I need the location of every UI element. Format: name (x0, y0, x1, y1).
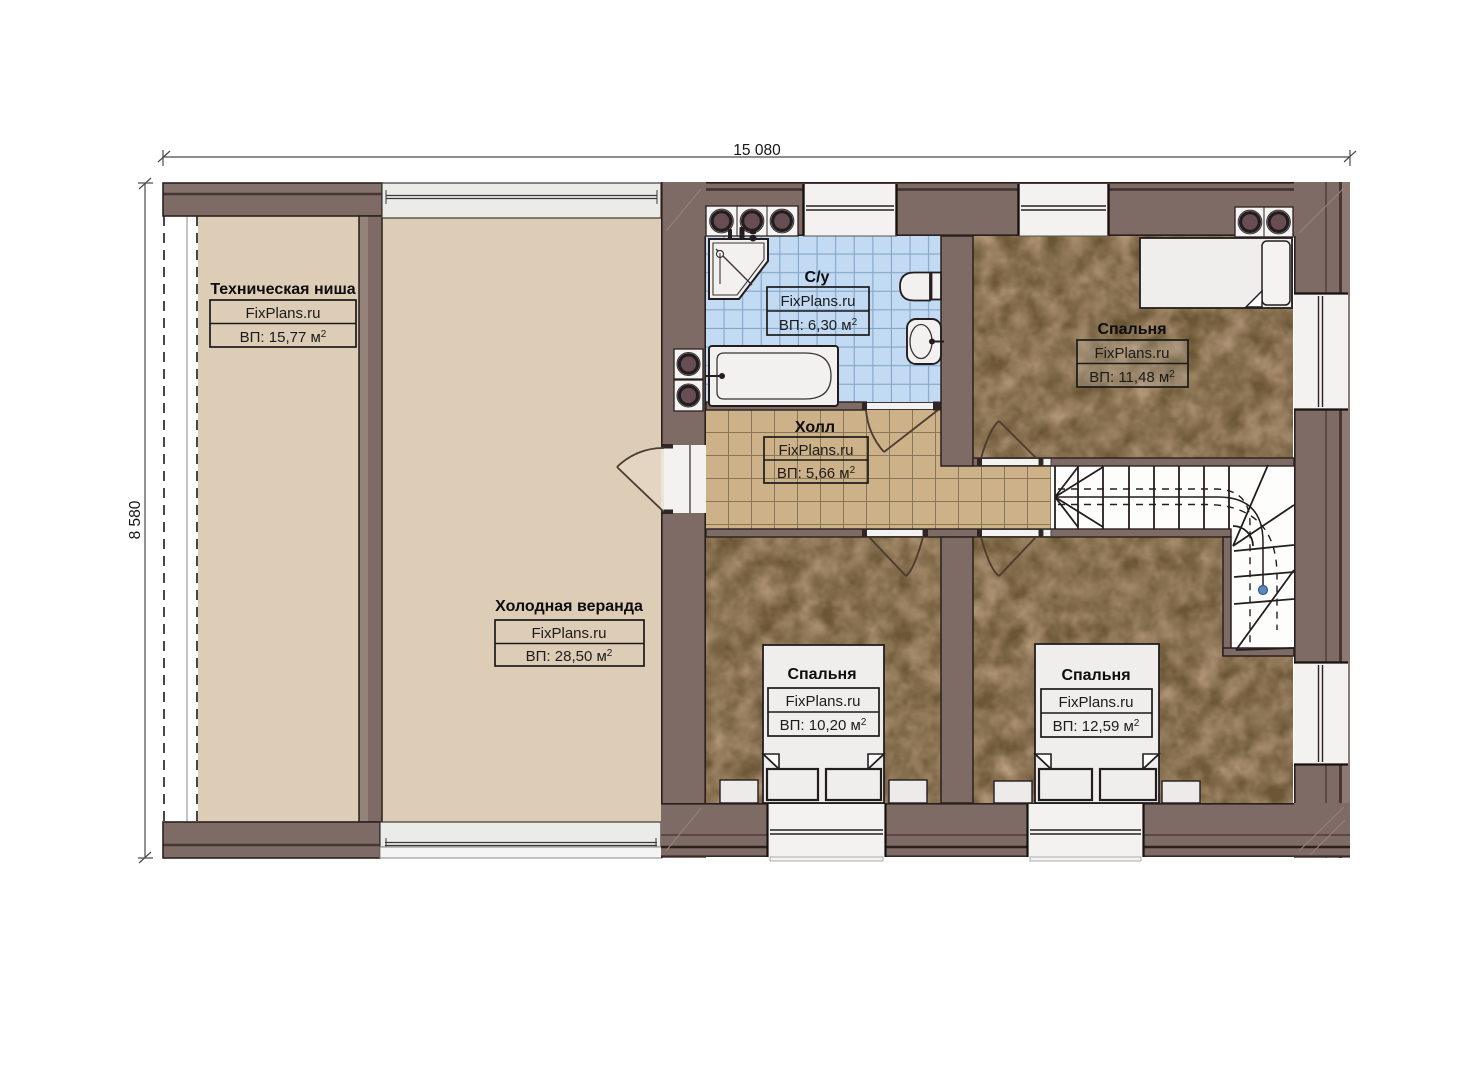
svg-text:Техническая ниша: Техническая ниша (210, 281, 355, 298)
svg-text:Холл: Холл (795, 419, 835, 436)
svg-text:FixPlans.ru: FixPlans.ru (785, 693, 860, 710)
svg-text:С/у: С/у (805, 269, 830, 286)
svg-text:FixPlans.ru: FixPlans.ru (1058, 694, 1133, 711)
svg-text:ВП: 28,50 м2: ВП: 28,50 м2 (526, 648, 613, 665)
svg-text:15 080: 15 080 (733, 142, 781, 159)
svg-text:ВП: 6,30 м2: ВП: 6,30 м2 (779, 317, 858, 334)
svg-text:ВП: 12,59 м2: ВП: 12,59 м2 (1053, 718, 1140, 735)
svg-text:ВП: 11,48 м2: ВП: 11,48 м2 (1089, 369, 1175, 386)
svg-text:FixPlans.ru: FixPlans.ru (1094, 345, 1169, 362)
svg-text:Спальня: Спальня (1097, 321, 1166, 338)
svg-text:Холодная веранда: Холодная веранда (495, 598, 643, 615)
svg-text:Спальня: Спальня (787, 666, 856, 683)
svg-text:FixPlans.ru: FixPlans.ru (780, 293, 855, 310)
svg-text:8 580: 8 580 (127, 500, 144, 539)
svg-text:FixPlans.ru: FixPlans.ru (245, 305, 320, 322)
svg-text:ВП: 10,20 м2: ВП: 10,20 м2 (780, 717, 867, 734)
svg-text:Спальня: Спальня (1061, 667, 1130, 684)
svg-text:ВП: 15,77 м2: ВП: 15,77 м2 (240, 329, 327, 346)
svg-text:FixPlans.ru: FixPlans.ru (531, 625, 606, 642)
svg-text:FixPlans.ru: FixPlans.ru (778, 442, 853, 459)
svg-text:ВП: 5,66 м2: ВП: 5,66 м2 (777, 465, 856, 482)
